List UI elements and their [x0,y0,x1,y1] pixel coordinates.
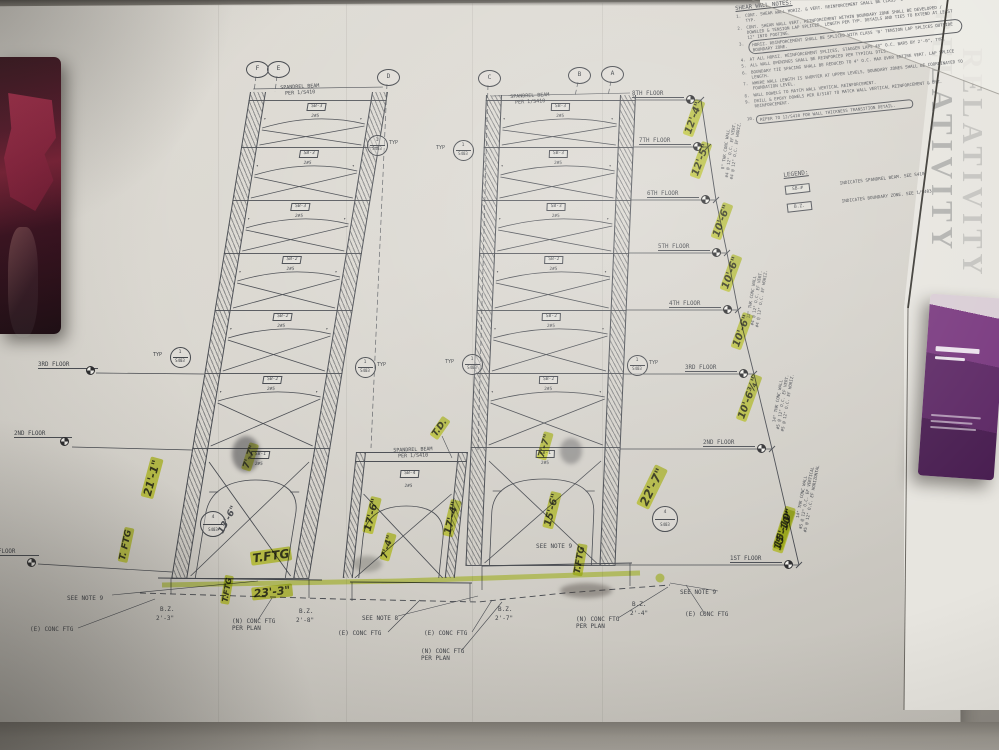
box-gloss [8,227,38,337]
handwritten-annotation: 22'-7" [636,464,668,510]
typ-label: TYP [436,145,445,151]
beam-line [355,461,467,462]
floor-line [249,100,387,101]
elevation-marker [784,560,793,569]
floor-line [171,578,309,579]
floor-line [481,200,631,201]
floor-label: 1ST FLOOR [0,549,39,556]
grid-bubble: F [246,61,269,78]
footing-label: 2'-3" [156,615,174,622]
detail-sheet: S403 [628,366,647,373]
story-dim-highlight: 10'-6" [719,254,742,293]
typ-label: TYP [445,359,454,365]
wall-construction-note: 14" THK CONC WALL#5 @ 12" O.C. EF VERTIC… [793,463,820,533]
detail-sheet: S403 [171,358,190,365]
footing-label: (N) CONC FTG PER PLAN [232,618,275,632]
floor-line [474,373,624,374]
beam-and-x-brace [257,110,369,147]
wall-construction-note: 14" THK CONC WALL#5 @ 12" O.C. EF VERT.#… [771,372,795,432]
grid-bubble: D [377,69,400,86]
detail-bubble: 1S403 [453,140,474,161]
footing-label: 2'-4" [630,610,648,617]
typ-label: TYP [153,352,162,358]
detail-bubble: 1S403 [627,355,648,376]
elevation-marker [86,366,95,375]
footing-label: (N) CONC FTG PER PLAN [576,616,619,630]
grid-bubble: B [568,67,591,84]
beam-and-x-brace [208,383,325,448]
floor-line [232,200,370,201]
floor-label: 2ND FLOOR [703,440,755,447]
typ-label: TYP [377,362,386,368]
typ-label: TYP [649,360,658,366]
footing-label: B.Z. [160,606,174,613]
elevation-marker [712,248,721,257]
handwritten-annotation: 21'-1" [140,457,163,500]
detail-sheet: S403 [463,365,482,372]
grid-bubble: C [478,70,501,87]
detail-bubble: 1S403 [462,354,483,375]
floor-label: 1ST FLOOR [730,556,782,563]
footing-label: 2'-8" [296,617,314,624]
purple-box-right [918,294,999,481]
typ-label: TYP [389,140,398,146]
floor-line [484,147,634,148]
table-edge-bottom [0,722,999,750]
rebar-label: 2#5 [404,484,412,489]
elevation-marker [757,444,766,453]
beam-and-x-brace [231,263,345,310]
floor-label: 6TH FLOOR [647,191,699,198]
handwritten-annotation: 23'-3" [251,583,293,600]
floor-line [204,373,342,374]
detail-sheet: S403 [653,520,677,529]
floor-label: 7TH FLOOR [639,138,691,145]
floor-label: 8TH FLOOR [632,91,684,98]
footing-label: (E) CONC FTG [685,611,728,618]
detail-number: 1 [356,358,375,368]
beam-and-x-brace [220,320,335,373]
story-dim-highlight: 10'-6¾" [736,374,763,423]
floor-line [215,310,353,311]
elevation-marker [701,195,710,204]
floor-line [224,253,362,254]
floor-line [477,310,627,311]
elevation-marker [723,305,732,314]
detail-bubble: 4S403 [652,506,678,532]
detail-number: 1 [171,348,190,358]
floor-line [192,448,330,449]
purple-box-left [0,57,61,334]
beam-and-x-brace [500,110,620,147]
footing-label: B.Z. [299,608,313,615]
elevation-marker [739,369,748,378]
floor-line [479,253,629,254]
grid-bubble: A [601,66,624,83]
beam-and-x-brace [495,210,615,253]
handwritten-annotation: T.FTG [220,575,234,605]
handwritten-annotation: T.D. [429,416,450,441]
elevation-marker [27,558,36,567]
grid-bubble: E [267,61,290,78]
detail-number: 4 [653,507,677,519]
detail-sheet: S403 [356,368,375,375]
spandrel-beam-note: SPANDREL BEAMPER 1/S410 [280,83,320,97]
footing-label: (E) CONC FTG [424,630,467,637]
spandrel-beam-note: SPANDREL BEAMPER 1/S410 [393,446,433,459]
footing-label: B.Z. [498,606,512,613]
footing-label: (E) CONC FTG [338,630,381,637]
detail-bubble: 1S403 [355,357,376,378]
sb-label: SB-4 [400,470,420,478]
spandrel-beam-note: SPANDREL BEAMPER 1/S410 [510,92,550,106]
handwritten-annotation: 15'-10" [772,508,796,553]
footing-label: (N) CONC FTG PER PLAN [421,648,464,662]
beam-and-x-brace [249,157,362,200]
floor-line [465,565,615,566]
detail-sheet: S403 [454,151,473,158]
floor-label: 3RD FLOOR [685,365,737,372]
detail-bubble: 1S403 [170,347,191,368]
story-dim-highlight: 10'-6" [710,202,733,241]
detail-number: 1 [463,355,482,365]
detail-number: 1 [454,141,473,151]
beam-and-x-brace [240,210,353,253]
wall-construction-note: 8" THK CONC WALL#4 @ 12" O.C. EF VERT.#4… [720,120,742,179]
detail-number: 1 [368,136,387,146]
footing-label: SEE NOTE 9 [680,589,716,596]
beam-and-x-brace [493,263,613,310]
story-dim-highlight: 12'-4" [682,99,705,138]
floor-line [486,100,636,101]
beam-and-x-brace [497,157,617,200]
floor-label: 4TH FLOOR [669,301,721,308]
floor-line [241,147,379,148]
floor-label: 5TH FLOOR [658,244,710,251]
footing-label: SEE NOTE 8 [362,615,398,622]
story-dim-highlight: 10'-6" [730,312,753,351]
detail-number: 1 [628,356,647,366]
footing-label: SEE NOTE 9 [67,595,103,602]
elevation-drawing: FEDCBASB-32#5▾▾SB-32#5▾▾SB-32#5▾▾SB-22#5… [0,0,999,750]
footing-label: 2'-7" [495,615,513,622]
footing-label: SEE NOTE 9 [536,543,572,550]
torn-label [4,93,56,211]
beam-and-x-brace [490,320,610,373]
elevation-marker [60,437,69,446]
detail-bubble: 1S403 [367,135,388,156]
footing-label: (E) CONC FTG [30,626,73,633]
handwritten-annotation: T. FTG [117,527,134,563]
detail-sheet: S403 [368,146,387,153]
photo-of-drawing: RELATIVITY RELATIVITY SHEAR WALL NOTES: … [0,0,999,750]
footing-label: B.Z. [632,601,646,608]
